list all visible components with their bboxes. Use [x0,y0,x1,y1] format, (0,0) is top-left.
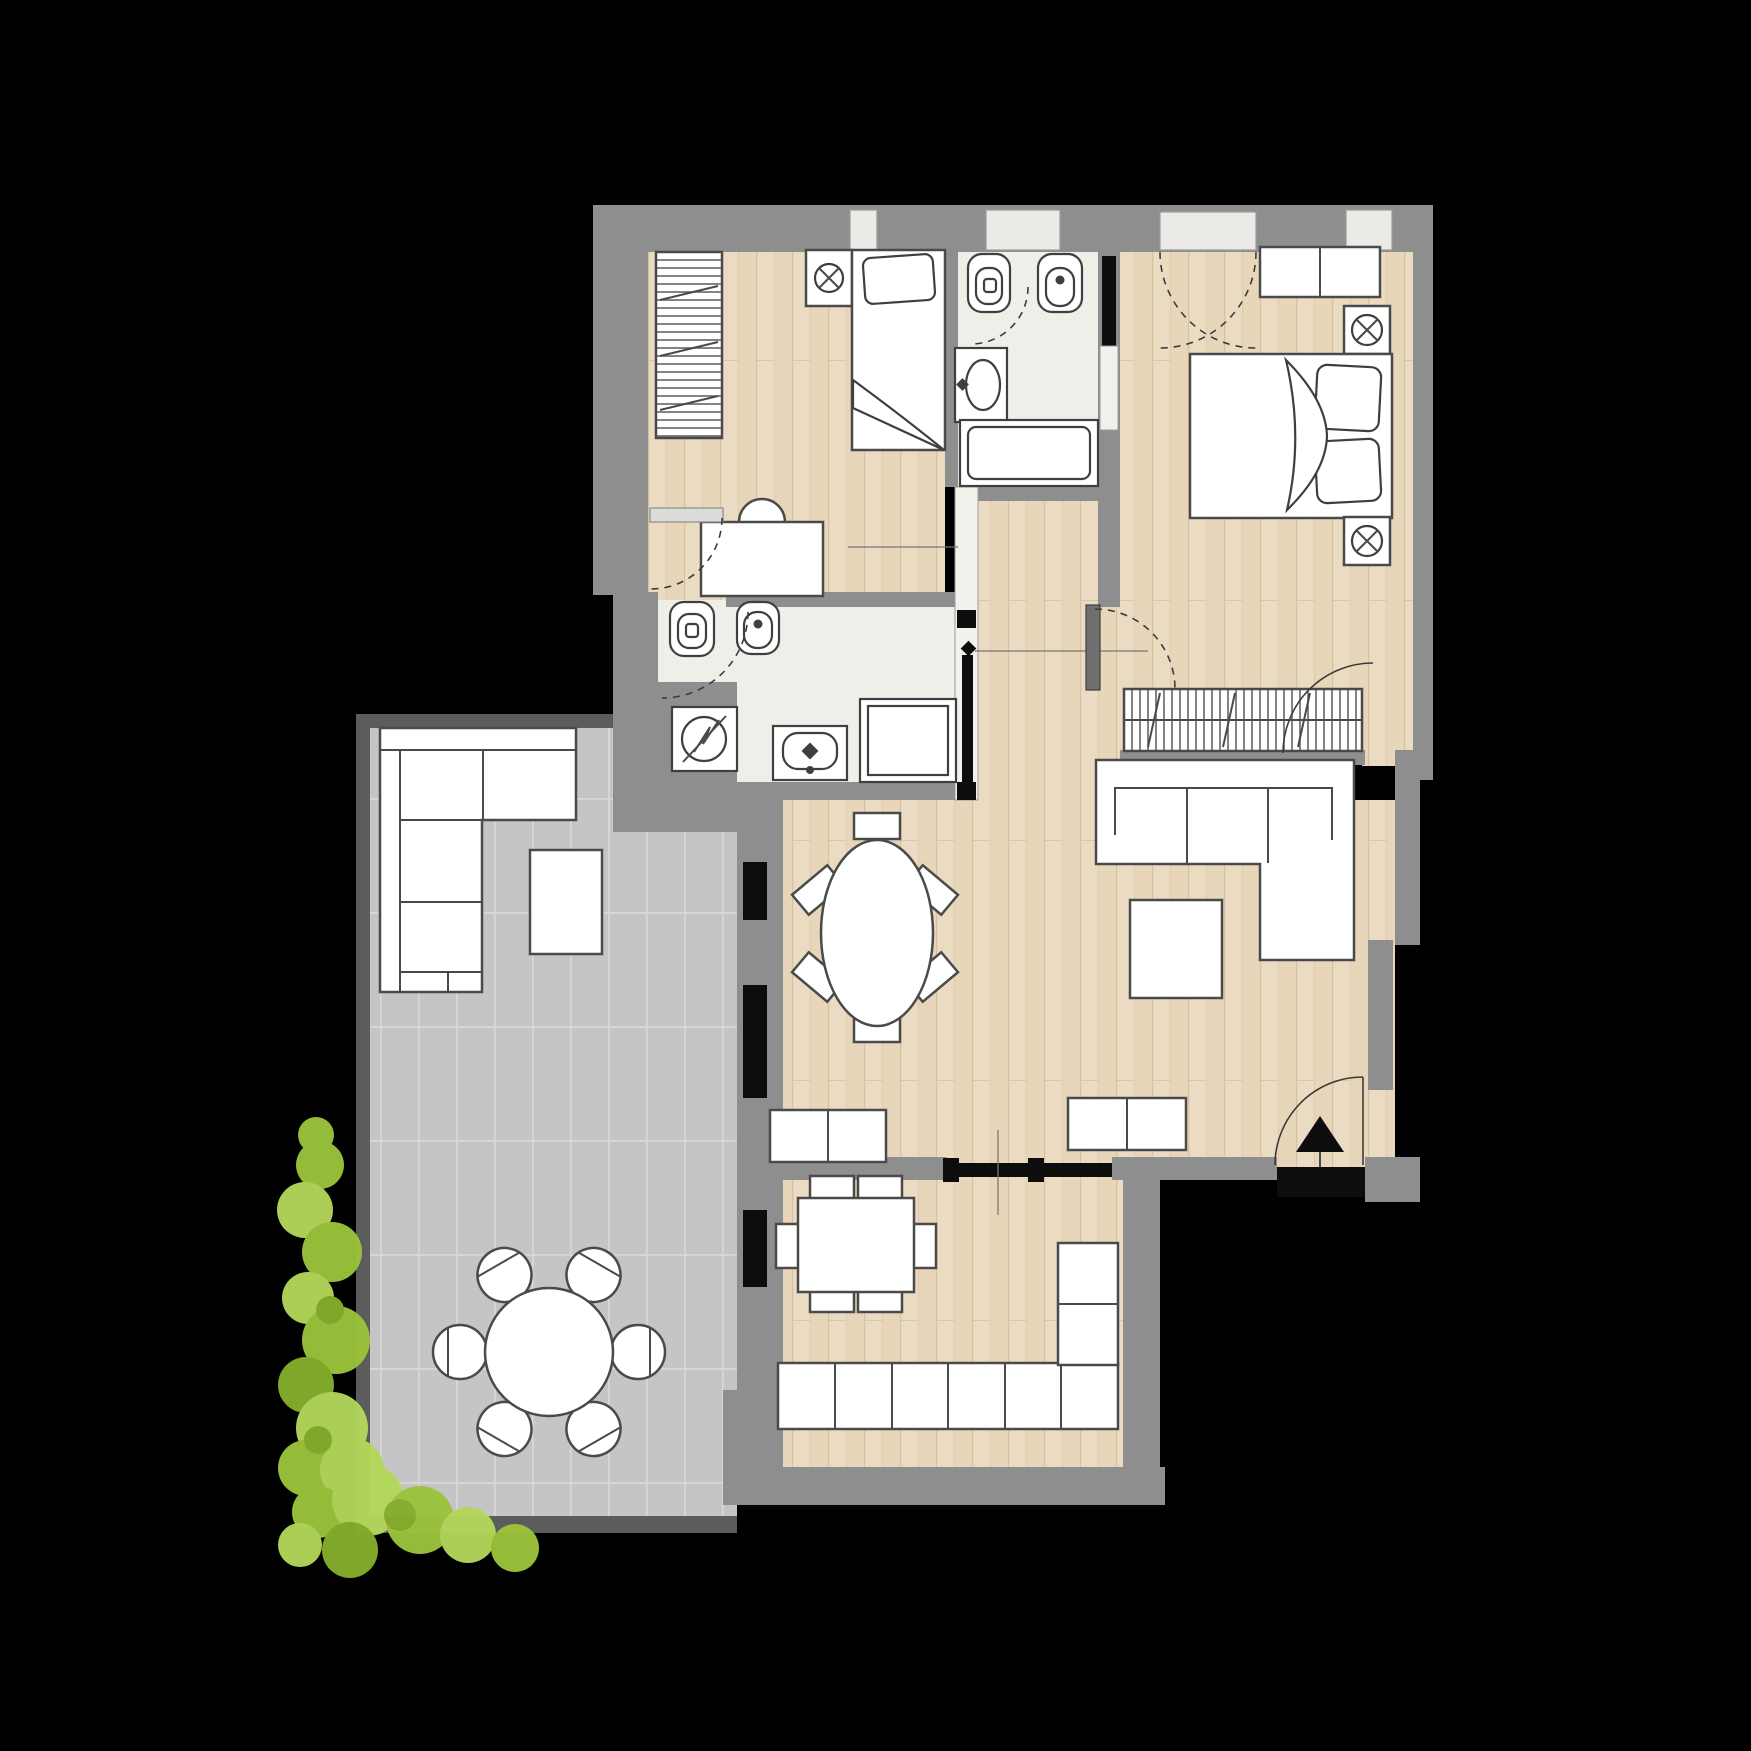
outdoor-round-table [485,1288,613,1416]
glazed-door-3 [743,1210,767,1287]
ceiling-lamp-icon [1352,315,1382,345]
shower-tray [860,699,956,782]
window-master-french [1160,212,1256,250]
nightstand-top [1344,306,1390,354]
desk [701,522,823,596]
glazed-door-1 [743,862,767,920]
oval-dining-table [821,840,933,1026]
sideboard-living [1068,1098,1186,1150]
nightstand-bottom [1344,517,1390,565]
round-chair [611,1325,665,1379]
window-bathroom-top [986,210,1060,250]
dresser [1260,247,1380,297]
wall-entrance-corner [1365,1157,1420,1202]
ceiling-lamp-icon [1352,526,1382,556]
pocket-cap-top [957,610,976,628]
pillow [862,254,935,305]
washing-machine [672,707,737,771]
wardrobe-hatched [656,252,722,438]
chair [912,1224,936,1268]
sideboard-dining [770,1110,886,1162]
kitchen-slider-cap-2 [1028,1158,1044,1182]
round-chair [433,1325,487,1379]
bath-pocket-door-panel [1102,256,1116,346]
pocket-cap-bottom [957,782,976,800]
wardrobe-hatched [1124,689,1362,751]
single-bed [852,250,945,450]
door-leaf-open [650,508,723,522]
wall-kitchen-sw [723,1390,739,1467]
master-pocket-door-panel [1086,605,1100,690]
double-bed [1190,354,1392,518]
window-master-east [1346,210,1392,250]
bidet [737,602,779,654]
nightstand [806,250,852,306]
wall-bathinner-south [613,782,960,800]
floor-masterdoor-gap [1362,750,1395,766]
kitchen-table [798,1198,914,1292]
wall-east-master [1413,205,1433,775]
floor-plan-canvas [0,0,1751,1751]
wall-east-living-upper [1395,755,1420,945]
toilet [670,602,714,656]
wall-east-living-pier [1368,940,1393,1090]
wall-west-bedroom [593,205,648,595]
kitchen-slider-end [1100,1165,1112,1177]
bidet [1038,254,1082,312]
floor-plan-stage [0,0,1751,1751]
bathtub [960,420,1098,486]
kitchen-slider-cap-1 [943,1158,959,1182]
wall-slider-stub [1112,1157,1123,1180]
glazed-door-2 [743,985,767,1098]
bath-pocket-slot [1100,346,1118,430]
wall-bath-top-south [958,487,1098,501]
sink [773,726,847,780]
coffee-table [1130,900,1222,998]
outdoor-side-table [530,850,602,954]
wall-kitchen-south [723,1467,1165,1505]
terrace-parapet-top [356,714,622,728]
chair [776,1224,800,1268]
window-bedroom-single [850,210,877,250]
pocket-door-panel [962,655,973,792]
toilet [968,254,1010,312]
wall-sink [955,348,1007,422]
wall-kitchen-east [1123,1157,1160,1480]
chair [854,813,900,839]
ceiling-lamp-icon [815,264,843,292]
